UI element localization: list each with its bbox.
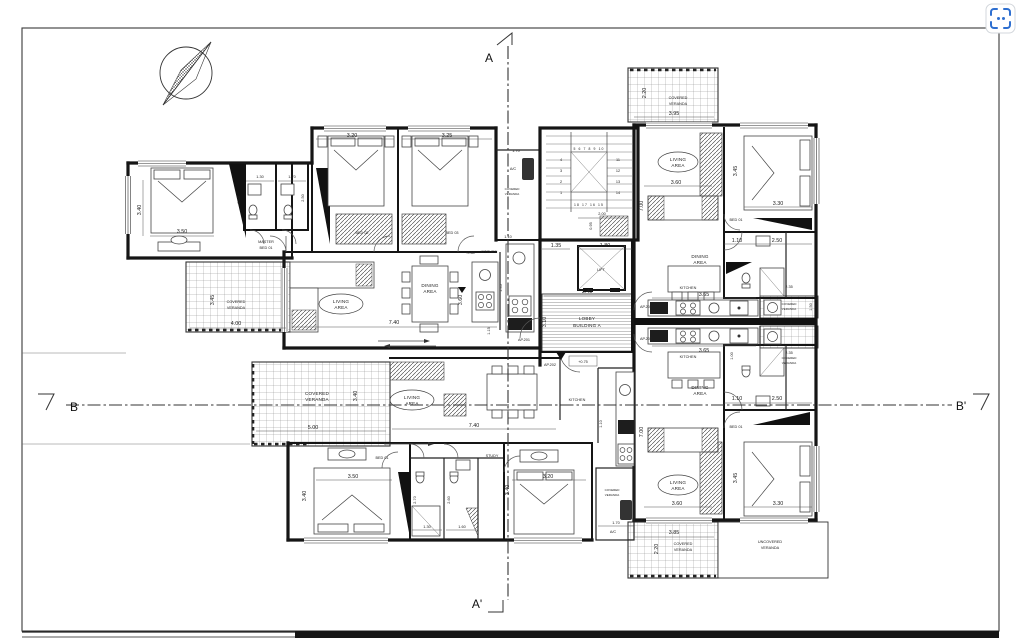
section-b-label: B <box>70 400 78 414</box>
dim: 3.20 <box>543 474 554 480</box>
floor-plan-canvas: A A' B B' 5 6 7 8 9 10 18 17 16 15 4 3 2… <box>0 0 1018 640</box>
dim: 1.10 <box>599 420 603 427</box>
room-label-dining: DINING <box>691 254 709 259</box>
room-label-veranda: COVERED <box>669 96 688 100</box>
door-label-ap203: AP.203 <box>640 337 652 341</box>
dim: 7.00 <box>639 201 645 212</box>
wardrobe <box>700 442 722 514</box>
dim: 3.45 <box>733 166 739 177</box>
room-label-veranda: VERANDA <box>674 548 693 552</box>
dim: 2.50 <box>772 238 783 244</box>
room-label-veranda: VERANDA <box>227 306 246 310</box>
dim: 3.60 <box>458 295 464 306</box>
room-label-veranda: COVERED <box>674 542 693 546</box>
dim: 3.95 <box>669 111 680 117</box>
dim: 1.80 <box>600 243 611 249</box>
stair-numbers-bottom: 18 17 16 15 <box>574 203 604 207</box>
room-label-living: LIVING <box>404 395 420 400</box>
dim: 1.15 <box>487 327 491 334</box>
dim: 1.30 <box>423 525 430 529</box>
room-label-study: STUDY <box>486 454 499 458</box>
sheet-frame <box>22 28 999 638</box>
screen-capture-icon[interactable] <box>986 4 1015 33</box>
dim: 1.45 <box>499 284 503 291</box>
room-label-bed2: BED 02 <box>355 231 368 235</box>
ac-label: A/C <box>610 530 617 534</box>
title-block-edge <box>295 631 999 638</box>
dim: 3.40 <box>137 205 143 216</box>
room-label-bed1: BED 01 <box>375 456 388 460</box>
dim: 3.25 <box>442 133 453 139</box>
stair-number: 13 <box>616 180 620 184</box>
dim: 3.40 <box>353 391 359 402</box>
room-label-dining: AREA <box>693 260 707 265</box>
dim: 1.35 <box>551 243 562 249</box>
dim: 3.85 <box>669 530 680 536</box>
room-label-kitchen: KITCHEN <box>680 355 697 359</box>
dim: 3.40 <box>582 289 593 295</box>
dim: 2.70 <box>413 496 417 503</box>
north-arrow-icon <box>160 42 212 105</box>
door-label-ap201: AP.201 <box>518 338 530 342</box>
ac-label: A/C <box>510 167 517 171</box>
room-label-veranda: VERANDA <box>669 102 688 106</box>
level-marker <box>458 287 466 293</box>
room-label-kitchen: KITCHEN <box>569 398 586 402</box>
room-label-living: LIVING <box>670 480 686 485</box>
dim: 3.60 <box>671 180 682 186</box>
dim: 1.60 <box>458 525 465 529</box>
dim: 7.00 <box>639 427 645 438</box>
level-label: +0.75 <box>578 360 588 364</box>
ac-unit <box>620 500 632 520</box>
room-label-veranda: COVERED <box>782 302 798 306</box>
lobby-label: BUILDING A <box>573 323 602 328</box>
dim: 2.20 <box>642 88 648 99</box>
room-label-kitchen: KITCHEN <box>481 250 498 254</box>
room-label-bed3: BED 03 <box>445 231 458 235</box>
room-label-dining: DINING <box>691 385 709 390</box>
room-label-veranda: COVERED <box>227 300 246 304</box>
dim: 3.20 <box>347 133 358 139</box>
dim: 3.40 <box>505 485 511 496</box>
dim: 1.70 <box>512 149 519 153</box>
room-label-uncovered: VERANDA <box>761 546 780 550</box>
room-label-uncovered: UNCOVERED <box>758 540 783 544</box>
uncovered-veranda <box>718 522 828 578</box>
lift-label: LIFT <box>597 268 605 272</box>
dim: 3.60 <box>672 501 683 507</box>
dim: 3.40 <box>302 491 308 502</box>
room-label-living: AREA <box>671 163 685 168</box>
room-label-veranda: VERANDA <box>305 397 329 402</box>
room-label-dining: DINING <box>421 283 439 288</box>
section-a-prime-label: A' <box>472 597 482 611</box>
dim: 3.30 <box>773 501 784 507</box>
dim: 3.65 <box>699 292 710 298</box>
veranda-ap202 <box>252 362 390 446</box>
section-b-prime-label: B' <box>956 399 966 413</box>
floor-plan-page: A A' B B' 5 6 7 8 9 10 18 17 16 15 4 3 2… <box>0 0 1018 640</box>
dim: 0.95 <box>589 222 593 229</box>
dim: 2.00 <box>598 212 605 216</box>
room-label-living: LIVING <box>333 299 349 304</box>
room-label-veranda: COVERED <box>305 391 330 396</box>
room-label-veranda: VERANDA <box>782 307 797 311</box>
dim: 3.10 <box>542 317 548 328</box>
lobby-label: LOBBY <box>579 316 595 321</box>
dim: 2.50 <box>772 396 783 402</box>
stair-number: 2 <box>560 180 562 184</box>
door-label-ap204: AP.204 <box>640 305 652 309</box>
stair-number: 12 <box>616 169 620 173</box>
dim: 2.50 <box>301 194 305 201</box>
dining-table <box>412 266 448 322</box>
stair-number: 1 <box>560 191 562 195</box>
dim: 2.60 <box>237 196 241 203</box>
ac-unit <box>522 158 534 180</box>
dim: 2.35 <box>785 285 792 289</box>
room-label-bed: BED 01 <box>729 425 742 429</box>
dim: 2.60 <box>447 496 451 503</box>
level-label: +0.80 <box>465 251 475 255</box>
room-label-dining: AREA <box>423 289 437 294</box>
dim: 7.40 <box>469 423 480 429</box>
door-label-ap202: AP.202 <box>544 363 556 367</box>
dim: 1.70 <box>612 521 619 525</box>
dim: 1.70 <box>288 175 295 179</box>
bed-03 <box>412 136 468 206</box>
room-label-veranda: VERANDA <box>605 493 620 497</box>
dim: 1.10 <box>504 235 511 239</box>
room-label-veranda: COVERED <box>782 356 798 360</box>
room-label-bed: BED 01 <box>729 218 742 222</box>
dim: 2.35 <box>785 351 792 355</box>
room-label-living: LIVING <box>670 157 686 162</box>
dim: 4.00 <box>231 321 242 327</box>
stair-number: 4 <box>560 158 562 162</box>
dim: 1.10 <box>732 238 743 244</box>
room-label-master: BED 01 <box>259 246 272 250</box>
room-label-kitchen: KITCHEN <box>680 286 697 290</box>
dim: 3.45 <box>733 473 739 484</box>
dim: 1.00 <box>730 352 734 359</box>
dim: 7.40 <box>389 320 400 326</box>
room-label-veranda: VERANDA <box>505 192 520 196</box>
wardrobe <box>336 214 392 244</box>
dim: 2.20 <box>654 544 660 555</box>
stair-number: 11 <box>616 158 620 162</box>
wardrobe <box>402 214 446 244</box>
wardrobe <box>700 133 722 196</box>
dim: 1.10 <box>732 396 743 402</box>
room-label-master: MASTER <box>258 240 274 244</box>
stair-number: 14 <box>616 191 620 195</box>
stair-numbers-top: 5 6 7 8 9 10 <box>573 147 604 151</box>
dim: 3.65 <box>699 348 710 354</box>
stair-number: 3 <box>560 169 562 173</box>
dim: 1.50 <box>809 303 813 310</box>
dim: 3.50 <box>348 474 359 480</box>
sofa <box>390 362 444 380</box>
fridge <box>508 318 532 330</box>
room-label-veranda: COVERED <box>505 187 521 191</box>
room-label-living: AREA <box>671 486 685 491</box>
dim: 3.50 <box>177 229 188 235</box>
room-label-dining: AREA <box>693 391 707 396</box>
dim: 3.45 <box>210 295 216 306</box>
room-label-veranda: COVERED <box>605 488 621 492</box>
bed-02 <box>328 136 384 206</box>
dim: 3.30 <box>773 201 784 207</box>
room-label-living: AREA <box>334 305 348 310</box>
room-label-living: AREA <box>405 401 419 406</box>
dim: 5.00 <box>308 425 319 431</box>
section-a-label: A <box>485 51 493 65</box>
room-label-veranda: VERANDA <box>782 361 797 365</box>
dim: 1.30 <box>256 175 263 179</box>
